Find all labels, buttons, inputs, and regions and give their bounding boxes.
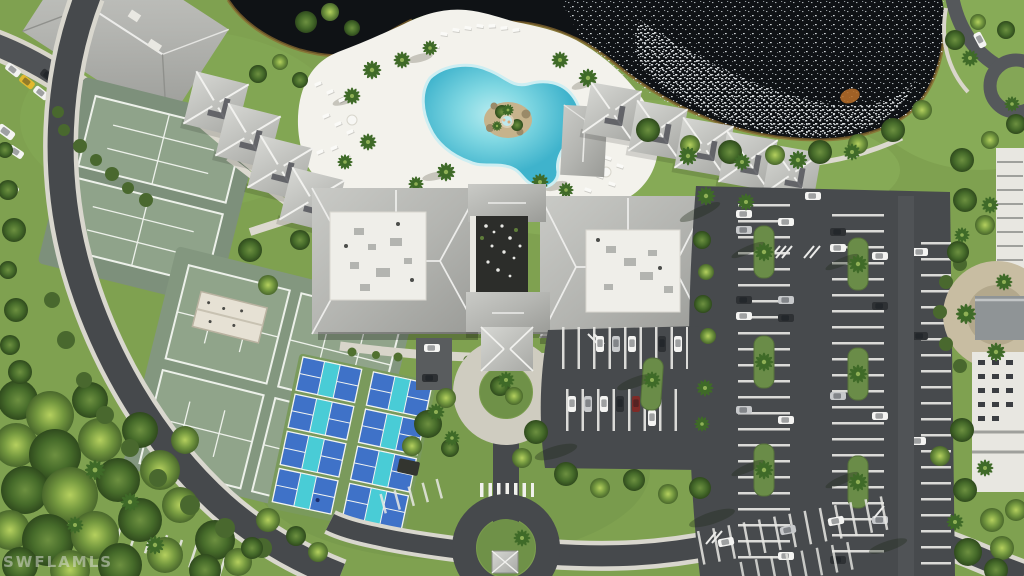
- clubhouse-flat-roof-east: [586, 230, 680, 312]
- porte-cochere: [481, 327, 533, 371]
- east-porte-cochere: [975, 296, 1024, 340]
- aerial-photo: SWFLAMLS: [0, 0, 1024, 576]
- red-car: [632, 396, 640, 412]
- clubhouse-flat-roof-west: [330, 212, 426, 300]
- watermark: SWFLAMLS: [3, 553, 113, 571]
- umbrella: [347, 115, 357, 125]
- gazebo: [492, 551, 518, 573]
- pool-island: [484, 102, 532, 138]
- island-spa: [501, 115, 513, 127]
